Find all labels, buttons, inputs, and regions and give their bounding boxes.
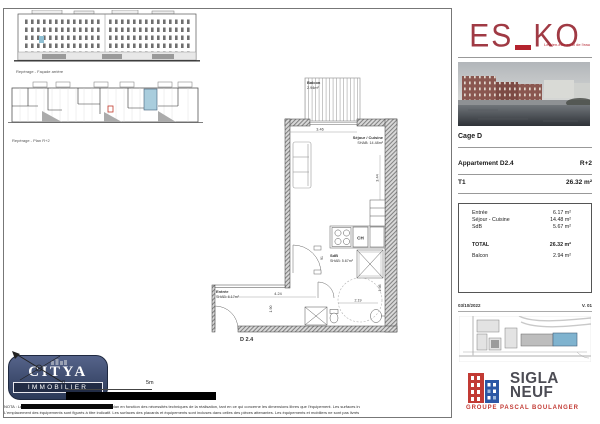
storefront [42, 54, 66, 59]
window-grid-right [108, 17, 192, 52]
entrance-door [215, 306, 238, 329]
floor-label: R+2 [580, 160, 592, 167]
divider [458, 174, 592, 175]
date-version-row: 03/10/2022 V. 01 [458, 303, 592, 308]
balcony-row-label: Balcon [472, 253, 488, 260]
row-value: 5.67 m² [553, 224, 571, 231]
highlighted-building [553, 333, 577, 346]
tall-cabinet [370, 200, 385, 226]
brick-building-windows [496, 82, 518, 102]
divider [458, 147, 592, 148]
areas-table: Entrée 6.17 m² Séjour - Cuisine 14.48 m²… [458, 203, 592, 293]
divider [458, 311, 592, 312]
storefront [102, 54, 122, 59]
row-value: 14.48 m² [550, 217, 571, 224]
entry-label: Entrée [216, 289, 229, 294]
roof-box [32, 10, 62, 14]
unit-number-label: D 2.4 [240, 337, 254, 343]
bathroom-label: SdB [330, 253, 338, 258]
plan-caption: Repérage - Plan R+2 [12, 138, 50, 143]
living-room-door [293, 245, 321, 274]
bar-building [521, 334, 553, 346]
living-room-label: Séjour / Cuisine [353, 135, 384, 140]
table-row: Séjour - Cuisine 14.48 m² [459, 217, 591, 224]
table-balcony-row: Balcon 2.94 m² [459, 253, 591, 260]
washing-machine [305, 307, 327, 325]
row-label: Séjour - Cuisine [472, 217, 510, 224]
version-label: V. 01 [582, 303, 592, 308]
balcony-row-value: 2.94 m² [553, 253, 571, 260]
balcony-area-label: 2.94m² [307, 86, 320, 90]
dim-bath-height: 1.98 [378, 285, 382, 292]
nota-line2: L'emplacement des équipements sont figur… [4, 410, 360, 416]
sigla-buildings-icon [462, 371, 506, 405]
type-label: T1 [458, 179, 466, 186]
storefront [152, 54, 174, 59]
total-value: 26.32 m² [550, 242, 571, 249]
balcony-label: Balcon [307, 80, 321, 85]
white-building [574, 83, 590, 98]
scale-bar [66, 392, 216, 400]
plan-sheet: Repérage - Façade arrière Repérage - P [0, 0, 600, 424]
roof-box [152, 11, 174, 14]
roof-unit [56, 82, 70, 87]
entry-partition [215, 285, 285, 288]
sigla-wordmark: SIGLA NEUF [510, 372, 559, 399]
total-label: TOTAL [472, 242, 489, 249]
brand-logo-right: KO [533, 21, 580, 53]
sink [371, 310, 386, 323]
roof-box [112, 10, 138, 14]
living-room-area: SHAB: 14.48m² [357, 141, 383, 145]
water [458, 105, 590, 126]
table-total-row: TOTAL 26.32 m² [459, 242, 591, 249]
bathroom-door [318, 282, 334, 298]
roof-unit [120, 82, 134, 87]
water-heater-label: CH [357, 236, 364, 241]
sofa [293, 142, 311, 188]
sigla-group-label: GROUPE PASCAL BOULANGER [466, 405, 579, 411]
date-label: 03/10/2022 [458, 303, 481, 308]
facade-elevation-drawing [12, 10, 202, 68]
cage-label: Cage D [458, 133, 482, 140]
scale-line [66, 389, 152, 390]
total-area-label: 26.32 m² [566, 179, 592, 186]
dim-entree-width: 4.24 [274, 292, 281, 296]
shower [357, 250, 383, 278]
toilet [330, 310, 338, 324]
brick-building-windows [518, 84, 542, 102]
sigla-line2: NEUF [510, 386, 559, 400]
highlighted-apartment-unit [144, 89, 157, 110]
apartment-label: Appartement D2.4 [458, 160, 514, 167]
table-row: SdB 5.67 m² [459, 224, 591, 231]
dim-entree-height: 1.90 [269, 306, 273, 313]
window-grid-left [22, 17, 102, 52]
facade-caption: Repérage - Façade arrière [16, 69, 63, 74]
divider [458, 193, 592, 194]
overview-plan-drawing [8, 80, 203, 134]
divider [458, 57, 592, 58]
roof-unit [94, 82, 108, 87]
brand-logo-left: ES [469, 21, 513, 53]
highlighted-apartment-window [39, 36, 44, 43]
dim-sejour-height: 3.44 [376, 174, 380, 181]
roof-unit [33, 82, 47, 87]
brick-building-windows [462, 76, 496, 102]
dim-door-width: 91 [320, 256, 324, 260]
white-building [544, 80, 574, 98]
roof-unit [158, 82, 172, 87]
dark-building [491, 340, 499, 348]
roof-box [74, 11, 94, 14]
table-row: Entrée 6.17 m² [459, 210, 591, 217]
brand-tagline: Le bien-être au fil de l'eau [500, 42, 590, 47]
scale-max-label: 5m [146, 380, 154, 386]
dim-sejour-width: 3.46 [316, 128, 323, 132]
sigla-neuf-logo: SIGLA NEUF GROUPE PASCAL BOULANGER [462, 371, 592, 417]
appliance [370, 227, 384, 247]
roof-unit [178, 82, 192, 87]
dim-sdb-width: 2.19 [355, 299, 362, 303]
building-render-photo [458, 62, 590, 126]
row-label: Entrée [472, 210, 488, 217]
redaction-bar [21, 404, 113, 409]
bathroom-area: SHAB: 5.67m² [330, 259, 354, 263]
apartment-floorplan: Balcon 2.94m² CH [210, 60, 400, 345]
north-compass-icon [4, 346, 70, 388]
row-label: SdB [472, 224, 482, 231]
site-plan-thumbnail [459, 316, 591, 362]
row-value: 6.17 m² [553, 210, 571, 217]
